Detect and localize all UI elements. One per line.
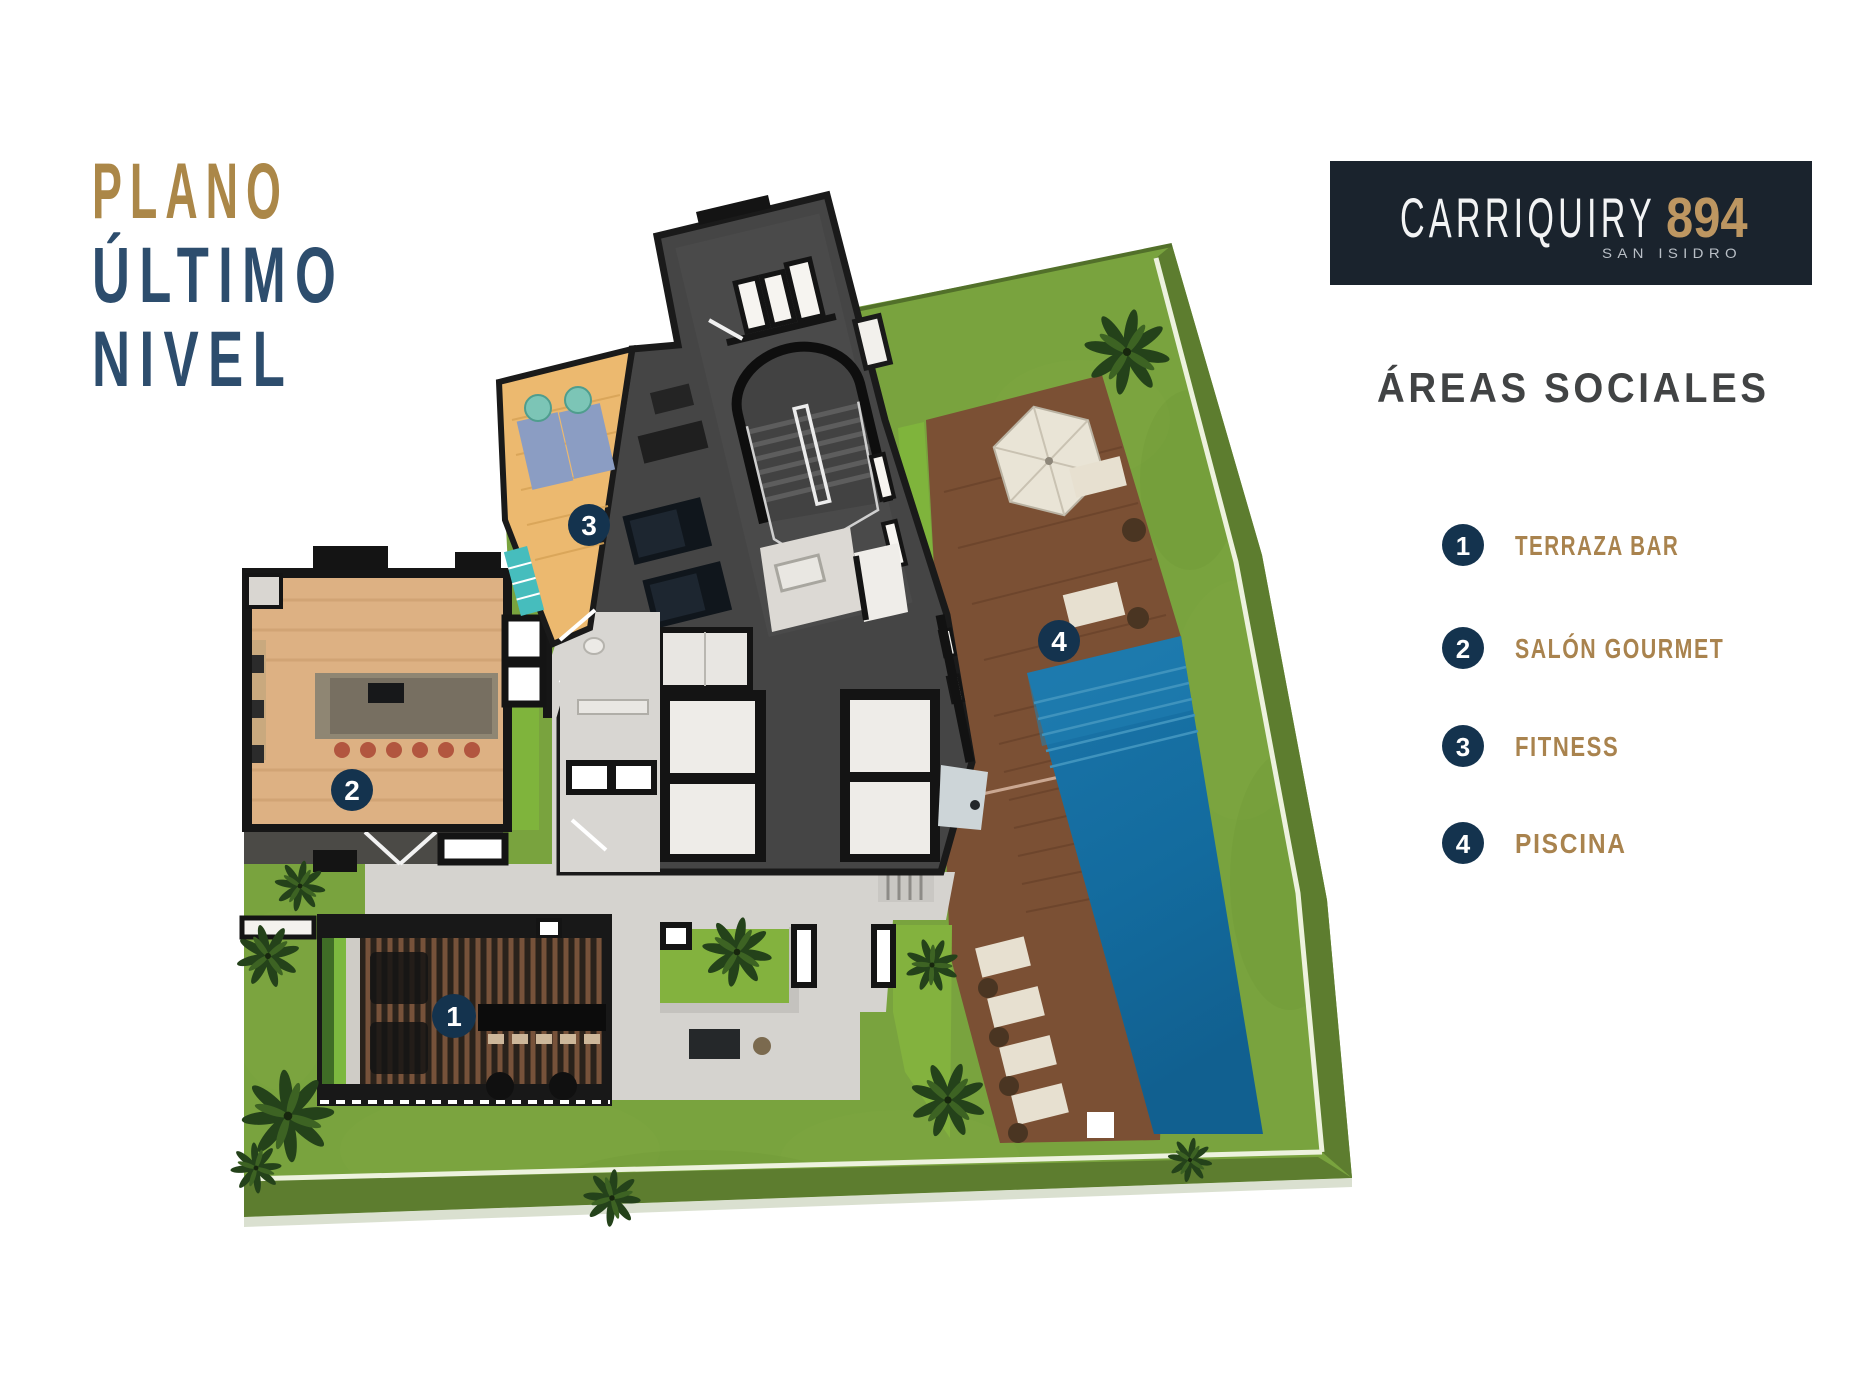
svg-text:3: 3 [1456,732,1470,762]
svg-text:4: 4 [1456,829,1471,859]
svg-text:CARRIQUIRY: CARRIQUIRY [1400,187,1656,250]
svg-text:TERRAZA BAR: TERRAZA BAR [1515,531,1679,562]
svg-text:PISCINA: PISCINA [1515,829,1627,860]
svg-text:NIVEL: NIVEL [92,314,294,403]
svg-text:ÁREAS SOCIALES: ÁREAS SOCIALES [1377,364,1770,411]
svg-text:3: 3 [581,510,597,541]
svg-text:1: 1 [1456,531,1470,561]
svg-text:894: 894 [1666,185,1748,249]
svg-text:1: 1 [446,1001,462,1032]
svg-text:2: 2 [1456,634,1470,664]
svg-text:ÚLTIMO: ÚLTIMO [92,230,345,319]
svg-text:PLANO: PLANO [92,146,289,235]
svg-text:FITNESS: FITNESS [1515,732,1619,763]
svg-text:2: 2 [344,775,360,806]
svg-text:SAN ISIDRO: SAN ISIDRO [1602,245,1742,261]
svg-text:SALÓN GOURMET: SALÓN GOURMET [1515,633,1724,665]
svg-text:4: 4 [1051,626,1067,657]
